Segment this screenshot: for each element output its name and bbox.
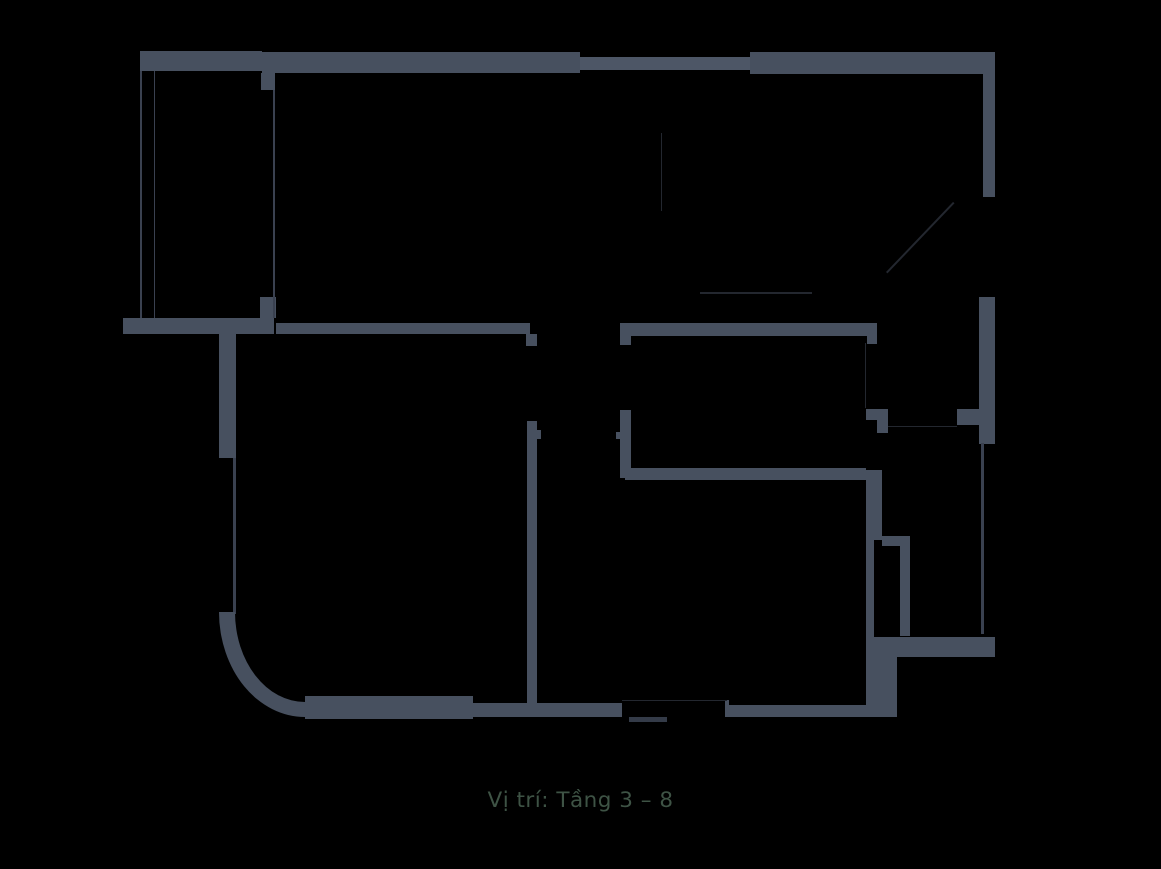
balcony-glass-line bbox=[233, 458, 236, 614]
interior-line-v1 bbox=[661, 133, 663, 211]
bottom-right-column bbox=[874, 657, 897, 718]
stair-bottom-wall bbox=[123, 318, 274, 335]
room1-top-stub bbox=[526, 334, 537, 346]
corridor-wall bbox=[527, 421, 538, 706]
bottom-wall-right bbox=[729, 705, 875, 717]
room2-top-wall bbox=[630, 323, 877, 336]
right-wall-mid bbox=[979, 297, 995, 444]
wc-wall-lower bbox=[866, 540, 874, 717]
door-swing-line bbox=[886, 202, 954, 273]
room2-top-lip bbox=[867, 336, 877, 344]
top-wall-left bbox=[140, 51, 263, 71]
right-window-tab bbox=[957, 409, 980, 426]
top-wall-right bbox=[750, 52, 995, 74]
stair-outline-line-3 bbox=[273, 90, 275, 318]
floor-caption: Vị trí: Tầng 3 – 8 bbox=[0, 788, 1161, 813]
stair-outline-line-1 bbox=[140, 71, 142, 318]
left-stem-wall bbox=[219, 334, 237, 458]
right-window-glass-line bbox=[981, 443, 984, 634]
top-window-wall bbox=[580, 57, 750, 70]
stair-outline-line-2 bbox=[154, 71, 156, 318]
balcony-curved-wall bbox=[219, 612, 306, 717]
bottom-wall-step bbox=[725, 700, 729, 717]
wc-right-wall bbox=[900, 546, 910, 636]
room2-door-tab bbox=[616, 432, 621, 439]
interior-line-v2 bbox=[865, 343, 867, 408]
room2-top-stub bbox=[620, 323, 631, 346]
wc-jog-wall bbox=[882, 536, 911, 546]
room1-top-wall bbox=[276, 323, 530, 334]
window-pier-v bbox=[877, 420, 888, 433]
window-pier-h bbox=[866, 409, 888, 420]
corridor-door-tab bbox=[537, 430, 541, 439]
column bbox=[261, 73, 275, 90]
right-wall-upper bbox=[983, 74, 996, 197]
bottom-wall-mid bbox=[473, 703, 622, 718]
top-wall-mid bbox=[262, 52, 580, 73]
door-threshold-line bbox=[622, 700, 727, 702]
door-threshold-ticks bbox=[629, 717, 667, 722]
bottom-wall-left bbox=[305, 696, 473, 719]
room2-bottom-wall bbox=[625, 468, 866, 480]
wc-wall-upper bbox=[866, 470, 882, 540]
floor-plan: Vị trí: Tầng 3 – 8 bbox=[0, 0, 1161, 869]
bottom-right-wall bbox=[874, 637, 995, 657]
interior-line-h1 bbox=[700, 292, 812, 294]
window-sill-line bbox=[888, 426, 957, 428]
